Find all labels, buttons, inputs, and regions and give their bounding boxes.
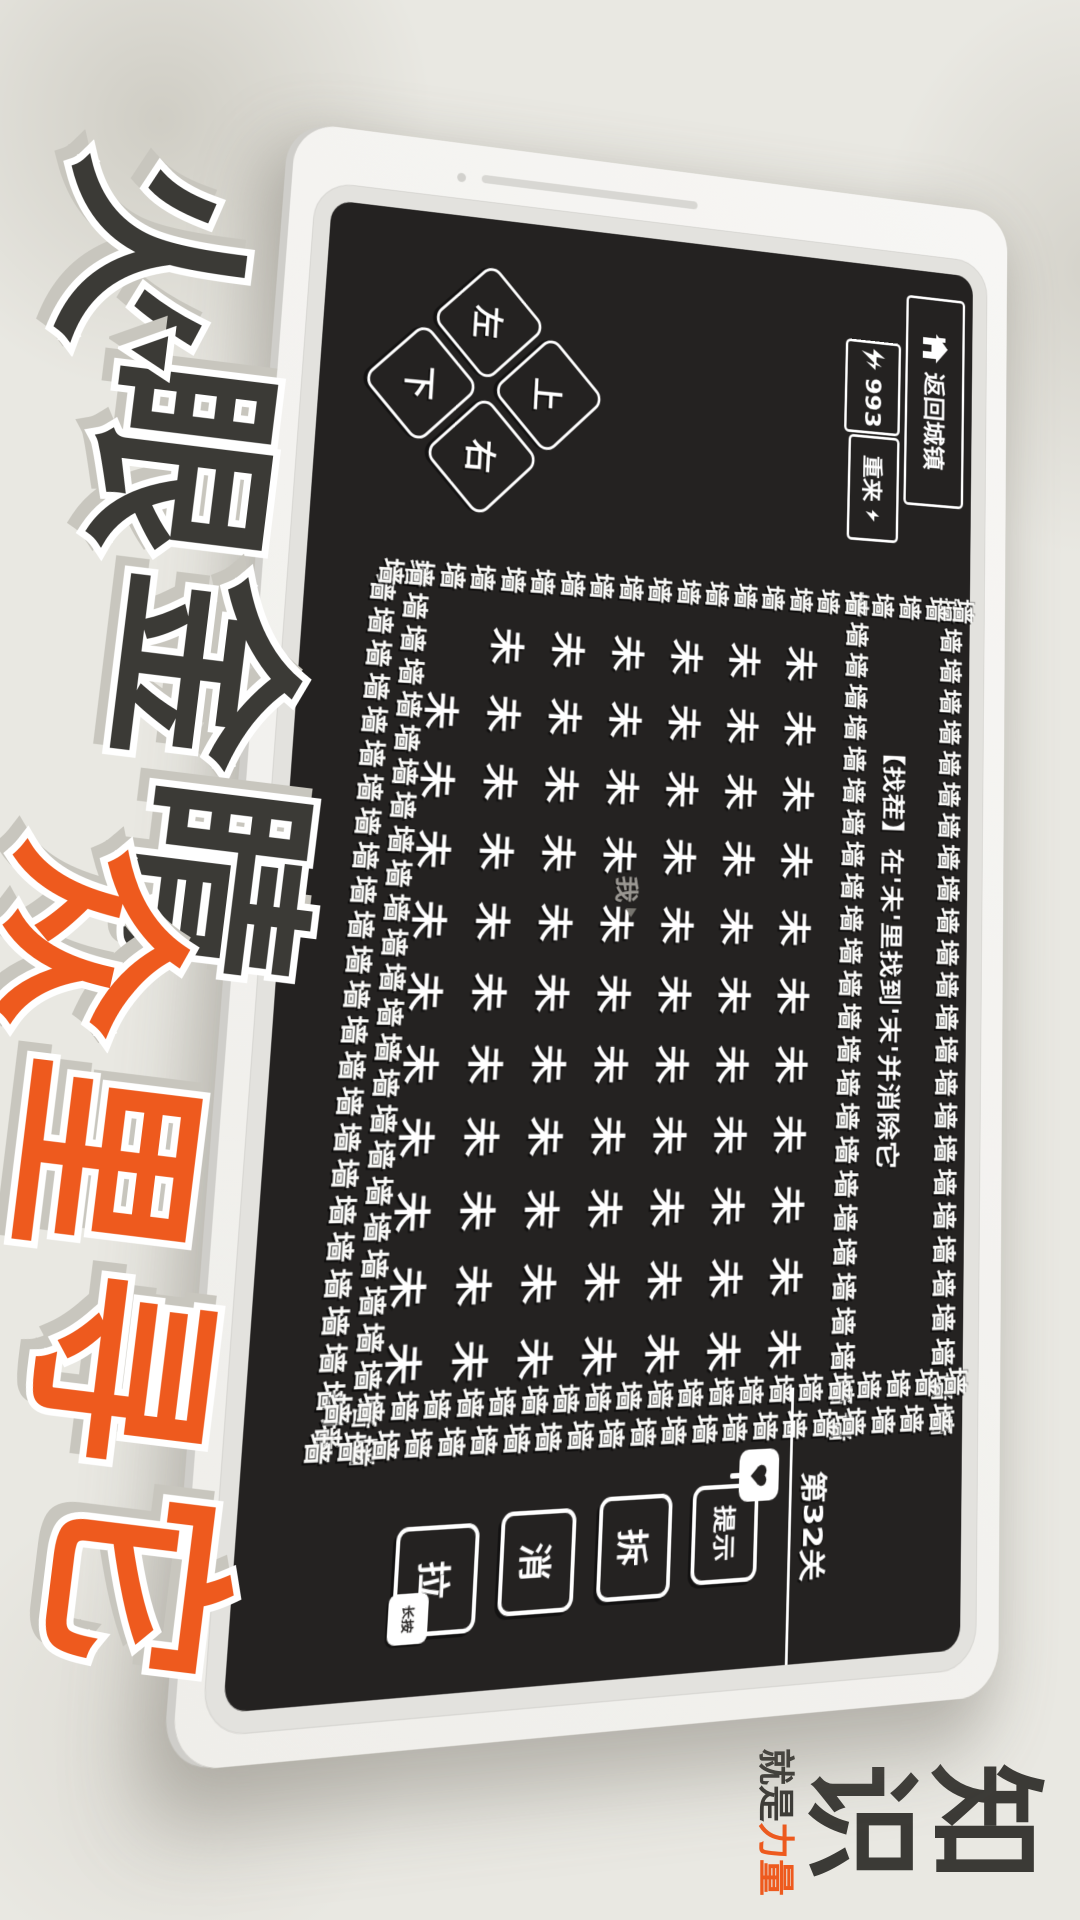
speaker-slot-icon	[482, 175, 698, 210]
grid-cell: 未	[471, 818, 520, 884]
grid-cell: 未	[702, 1244, 749, 1313]
slogan-char: 众	[0, 831, 197, 1049]
grid-cell: 未	[711, 963, 756, 1028]
wall-char: 墙	[838, 838, 865, 870]
wall-char: 墙	[759, 582, 786, 613]
wall-char: 墙	[923, 594, 949, 625]
grid-cell: 未	[527, 960, 576, 1026]
wall-char: 墙	[779, 1407, 808, 1443]
grid-cell: 未	[479, 681, 528, 746]
grid-cell: 未	[530, 890, 579, 956]
grid-cell: 未	[706, 1102, 752, 1168]
grid-cell: 未	[604, 622, 650, 686]
wall-char: 墙	[839, 775, 866, 806]
grid-cell: 未	[761, 1314, 807, 1383]
wall-char: 墙	[840, 743, 867, 774]
wall-char: 墙	[841, 712, 868, 743]
wall-char: 墙	[357, 703, 389, 737]
wall-char: 墙	[869, 590, 895, 621]
wall-char: 墙	[934, 842, 960, 873]
dismantle-button[interactable]: 拆	[596, 1493, 673, 1603]
grid-cell: 未	[715, 827, 760, 891]
game-screen: 返回城镇 993 重来 【找茬】在'未'里找到'末'并消除它 墙墙墙墙墙墙墙墙墙…	[223, 200, 973, 1713]
grid-cell: 未	[390, 1103, 442, 1172]
grid-cell: 未	[656, 825, 702, 889]
logo-char: 知	[922, 1763, 1045, 1881]
wall-char: 墙	[331, 1084, 365, 1119]
grid-cell: 未	[763, 1243, 809, 1311]
grid-cell: 未	[774, 829, 818, 892]
grid-cell: 未	[443, 1325, 495, 1398]
wall-char: 墙	[937, 625, 963, 656]
wall-char: 墙	[940, 1364, 967, 1398]
wall-char: 墙	[833, 1067, 861, 1099]
wall-char: 墙	[935, 748, 961, 779]
wall-char: 墙	[363, 603, 395, 636]
grid-cell: 未	[704, 1173, 750, 1240]
wall-char: 墙	[674, 576, 702, 608]
button-label: 消	[513, 1541, 562, 1583]
grid-cell: 未	[534, 820, 582, 885]
wall-char: 墙	[832, 1100, 860, 1132]
grid-cell: 未	[412, 746, 462, 812]
wall-char: 墙	[933, 969, 960, 1000]
wall-char: 墙	[936, 686, 962, 717]
logo-char: 识	[800, 1763, 923, 1881]
wall-char: 墙	[831, 1167, 859, 1200]
wall-char: 墙	[527, 566, 557, 599]
grid-cell: 未	[385, 1177, 438, 1247]
wall-char: 墙	[467, 561, 498, 594]
wall-char: 墙	[319, 1266, 353, 1302]
grid-cell: 未	[586, 1031, 634, 1097]
slogan-char: 金	[91, 561, 309, 779]
grid-cell: 未	[765, 1172, 810, 1239]
wall-char: 墙	[931, 1067, 958, 1099]
wall-char: 墙	[933, 937, 959, 968]
wall-char: 墙	[931, 1100, 958, 1132]
grid-cell: 未	[643, 1174, 691, 1242]
grid-cell: 未	[722, 629, 766, 692]
wall-char: 墙	[499, 1420, 531, 1457]
wall-char: 墙	[361, 636, 393, 669]
wall-char: 墙	[702, 578, 730, 610]
wall-char: 墙	[842, 650, 869, 681]
level-badge: 第32关	[793, 1439, 836, 1615]
wall-char: 墙	[809, 1406, 838, 1441]
wall-char: 墙	[786, 584, 813, 615]
wall-char: 墙	[688, 1411, 718, 1447]
pull-button[interactable]: 拉长按	[391, 1523, 481, 1639]
wall-char: 墙	[829, 1235, 857, 1269]
wall-char: 墙	[645, 574, 674, 606]
wall-char: 墙	[830, 1201, 858, 1234]
wall-char: 墙	[836, 903, 863, 935]
wall-char: 墙	[319, 1391, 354, 1429]
grid-cell: 未	[577, 1247, 626, 1317]
tablet-mockup: 返回城镇 993 重来 【找茬】在'未'里找到'末'并消除它 墙墙墙墙墙墙墙墙墙…	[223, 200, 973, 1713]
grid-cell: 未	[720, 694, 764, 757]
wall-char: 墙	[359, 670, 391, 704]
wall-char: 墙	[730, 580, 758, 612]
wall-char: 墙	[345, 873, 378, 907]
wall-char: 墙	[912, 1365, 940, 1400]
wall-char: 墙	[657, 1413, 688, 1449]
grid-cell: 未	[776, 763, 820, 826]
wall-char: 墙	[626, 1414, 657, 1450]
slogan-char: 眼	[71, 351, 289, 569]
wall-char: 墙	[854, 1368, 882, 1403]
wall-char: 墙	[838, 1404, 867, 1439]
energy-value: 993	[860, 377, 886, 429]
camera-icon	[457, 172, 466, 182]
wall-char: 墙	[836, 935, 863, 967]
logo-small-dark: 就是	[757, 1748, 794, 1822]
wall-char: 墙	[937, 656, 963, 687]
grid-cell: 未	[778, 698, 821, 761]
grid-cell: 未	[376, 1327, 429, 1400]
target-cell[interactable]: 末	[516, 1175, 566, 1244]
grid-cell: 未	[467, 888, 517, 954]
grid-cell: 未	[399, 958, 450, 1025]
wall-char: 墙	[595, 1416, 626, 1453]
grid-cell: 未	[583, 1103, 631, 1170]
grid-cell: 未	[463, 959, 513, 1026]
lightning-icon	[866, 509, 880, 522]
wall-char: 墙	[932, 1002, 959, 1033]
wall-char: 墙	[434, 1423, 467, 1461]
wall-char: 墙	[336, 1013, 369, 1047]
grid-cell: 未	[653, 893, 699, 958]
wall-char: 墙	[531, 1419, 563, 1456]
wall-char: 墙	[405, 557, 436, 590]
grid-cell: 未	[520, 1103, 570, 1171]
wall-char: 墙	[868, 1403, 896, 1438]
wall-char: 墙	[322, 1229, 356, 1265]
wall-char: 墙	[832, 1134, 860, 1167]
wall-char: 墙	[929, 1233, 956, 1266]
retry-button[interactable]: 重来	[847, 434, 900, 544]
wall-char: 墙	[843, 619, 870, 650]
wall-char: 墙	[814, 586, 841, 617]
wall-char: 墙	[334, 1048, 367, 1082]
slogan-char: 火	[39, 146, 257, 364]
grid-cell: 未	[513, 1249, 563, 1320]
grid-cell: 未	[659, 758, 705, 822]
grid-cell: 未	[509, 1323, 560, 1395]
grid-cell: 未	[451, 1176, 502, 1246]
wall-char: 墙	[586, 570, 615, 602]
wall-char: 墙	[398, 589, 429, 622]
wall-char: 墙	[352, 770, 384, 804]
wall-char: 墙	[834, 1001, 862, 1033]
grid-cell: 未	[482, 614, 530, 679]
grid-cell: 未	[770, 964, 814, 1028]
wall-char: 墙	[936, 717, 962, 748]
wall-char: 墙	[324, 1192, 358, 1228]
wall-char: 墙	[841, 681, 868, 712]
grid-cell: 未	[394, 1030, 446, 1098]
grid-cell: 未	[768, 1033, 813, 1097]
grid-cell: 未	[475, 749, 524, 815]
wall-char: 墙	[343, 908, 376, 942]
wall-char: 墙	[466, 1422, 499, 1459]
hint-lamp-icon	[738, 1448, 779, 1502]
wall-char: 墙	[933, 905, 959, 936]
grid-cell: 未	[601, 688, 647, 752]
wall-char: 墙	[616, 572, 645, 604]
wall-char: 墙	[949, 596, 974, 627]
grid-cell: 未	[523, 1031, 572, 1098]
wall-char: 墙	[341, 942, 374, 976]
grid-cell: 未	[381, 1252, 434, 1324]
wall-char: 墙	[930, 1166, 957, 1198]
wall-char: 墙	[749, 1408, 779, 1444]
grid-cell: 未	[544, 618, 591, 682]
grid-cell: 未	[447, 1250, 499, 1321]
grid-cell: 未	[651, 962, 698, 1027]
wall-char: 墙	[333, 1428, 367, 1466]
wall-char: 墙	[930, 1199, 957, 1232]
grid-cell: 未	[416, 678, 466, 744]
energy-display: 993	[844, 338, 901, 437]
wall-char: 墙	[842, 588, 869, 619]
logo-small-orange: 力量	[757, 1822, 794, 1896]
wall-char: 墙	[374, 555, 406, 588]
instruction-text: 【找茬】在'未'里找到'末'并消除它	[868, 584, 914, 1343]
wall-char: 墙	[925, 1400, 953, 1435]
brand-logo: 知 识 就是 力量	[745, 1739, 1045, 1905]
dpad-label: 左	[449, 279, 529, 366]
grid-cell: 未	[598, 755, 645, 820]
grid-cell: 未	[709, 1032, 755, 1097]
grid-cell: 未	[699, 1317, 746, 1387]
long-press-tag: 长按	[386, 1592, 429, 1646]
lightning-icon	[861, 346, 885, 371]
wall-char: 墙	[883, 1367, 911, 1402]
grid-cell: 未	[645, 1102, 692, 1169]
slogan-char: 寻	[9, 1259, 227, 1477]
wall-char: 墙	[317, 1303, 351, 1340]
back-to-town-button[interactable]: 返回城镇	[903, 295, 965, 510]
wall-char: 墙	[896, 592, 922, 623]
back-to-town-label: 返回城镇	[918, 371, 950, 472]
grid-cell: 未	[407, 816, 458, 883]
wall-char: 墙	[719, 1410, 749, 1446]
wall-char: 墙	[348, 839, 381, 873]
wall-char: 墙	[327, 1156, 361, 1191]
wall-char: 墙	[835, 968, 863, 1000]
grid-cell: 未	[580, 1174, 629, 1243]
slogan-char: ▼	[128, 332, 178, 373]
grid-cell: 未	[779, 633, 822, 695]
wall-char: 墙	[931, 1133, 958, 1165]
wall-char: 墙	[839, 806, 866, 837]
wall-char: 墙	[837, 870, 864, 902]
slogan-char: 里	[0, 1049, 211, 1267]
wall-char: 墙	[314, 1340, 348, 1377]
wall-char: 墙	[396, 622, 428, 655]
grid-cell: 未	[637, 1319, 685, 1390]
wall-char: 墙	[350, 804, 383, 838]
grid-cell: 未	[713, 895, 758, 959]
player-character: 我	[610, 875, 646, 903]
grid-cell: 未	[403, 886, 454, 953]
wall-char: 墙	[436, 559, 467, 592]
wall-char: 墙	[828, 1304, 856, 1338]
wall-char: 墙	[557, 568, 587, 600]
home-icon	[922, 332, 949, 366]
scene: 知 识 就是 力量 返回城镇	[0, 0, 1080, 1920]
wall-char: 墙	[935, 810, 961, 841]
wall-char: 墙	[834, 1034, 862, 1066]
grid-cell: 未	[664, 626, 709, 689]
wall-char: 墙	[934, 873, 960, 904]
wall-char: 墙	[329, 1120, 363, 1155]
player-cursor-icon	[626, 908, 637, 917]
grid-cell: 未	[537, 752, 585, 817]
wall-char: 墙	[932, 1034, 959, 1065]
wall-char: 墙	[367, 1427, 401, 1465]
grid-cell: 未	[772, 896, 816, 960]
wall-char: 墙	[355, 737, 387, 771]
wall-char: 墙	[497, 563, 527, 596]
grid-cell: 未	[648, 1032, 695, 1098]
wall-char: 墙	[400, 1425, 434, 1463]
retry-label: 重来	[858, 454, 888, 503]
wall-char: 墙	[563, 1417, 595, 1454]
wall-char: 墙	[339, 978, 372, 1012]
grid-cell: 未	[573, 1321, 623, 1392]
slogan-char: 它	[23, 1473, 241, 1691]
button-label: 拆	[611, 1527, 658, 1568]
grid-cell: 未	[640, 1246, 688, 1315]
wall-char: 墙	[929, 1267, 956, 1300]
grid-cell: 未	[766, 1102, 811, 1167]
wall-char: 墙	[928, 1301, 955, 1335]
wall-char: 墙	[935, 779, 961, 810]
eliminate-button[interactable]: 消	[497, 1508, 577, 1617]
wall-char: 墙	[829, 1270, 857, 1304]
wall-char: 墙	[825, 1369, 854, 1404]
grid-cell: 未	[661, 691, 706, 755]
button-label: 提示	[707, 1504, 742, 1563]
grid-cell: 未	[455, 1103, 506, 1171]
grid-cell: 未	[459, 1031, 510, 1098]
wall-char: 墙	[897, 1401, 925, 1436]
grid-cell: 未	[541, 685, 589, 750]
wall-char: 墙	[299, 1430, 334, 1468]
grid-cell: 未	[589, 961, 637, 1027]
grid-cell: 未	[718, 760, 763, 823]
